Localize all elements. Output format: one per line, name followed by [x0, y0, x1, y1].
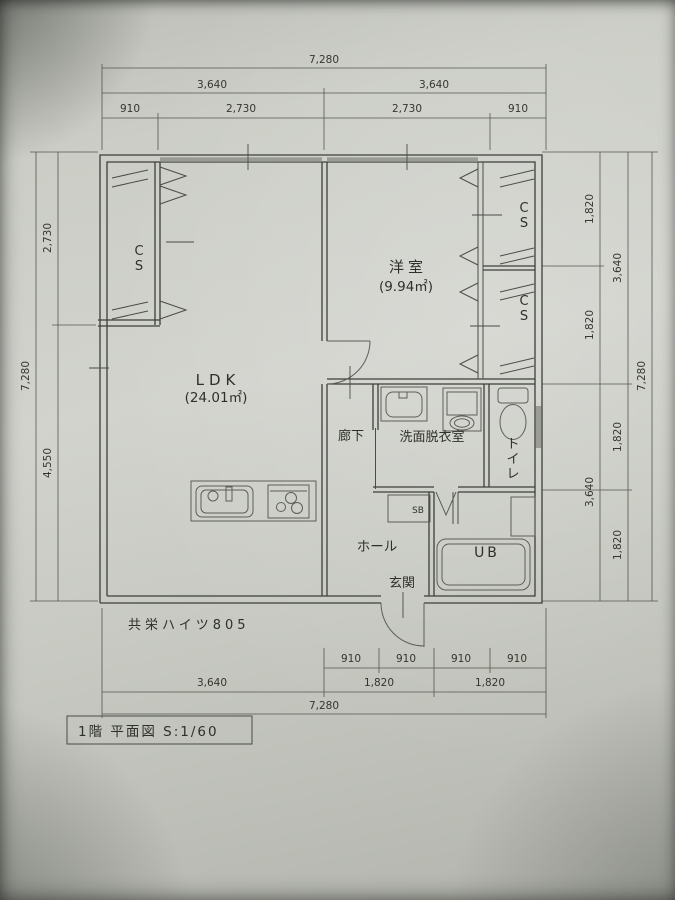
dim-bottom-910-1: 910	[341, 653, 361, 665]
interior-walls	[322, 162, 535, 596]
dim-top-seg4: 910	[508, 103, 528, 115]
dimension-chain-top: 7,280 3,640 3,640 910 2,730 2,730 910	[102, 54, 546, 150]
closet-label-right-bottom: CS	[519, 294, 528, 324]
ub-counter	[511, 497, 535, 536]
dim-top-seg2: 2,730	[226, 103, 256, 115]
dim-top-seg1: 910	[120, 103, 140, 115]
dim-left-total: 7,280	[20, 361, 32, 391]
kitchen-sink	[196, 486, 253, 517]
room-label-western: 洋室	[389, 258, 427, 276]
dim-top-total: 7,280	[309, 54, 339, 66]
dim-top-seg3: 2,730	[392, 103, 422, 115]
dim-bottom-910-2: 910	[396, 653, 416, 665]
sliding-door-marks	[460, 169, 478, 373]
washbasin	[381, 387, 427, 421]
building-label: 共栄ハイツ805	[128, 618, 250, 633]
dim-right-1820-a: 1,820	[584, 194, 596, 224]
washing-machine	[443, 388, 481, 431]
window-western-top	[327, 157, 478, 162]
title-block-text: 1階 平面図 S:1/60	[78, 724, 219, 740]
dim-bottom-910-4: 910	[507, 653, 527, 665]
kitchen-counter	[191, 481, 316, 521]
dim-right-3640-b: 3,640	[612, 253, 624, 283]
floor-plan-photo: 7,280 3,640 3,640 910 2,730 2,730 910 91…	[0, 0, 675, 900]
dim-right-1820-b: 1,820	[584, 310, 596, 340]
room-label-entrance: 玄関	[389, 576, 415, 591]
room-area-ldk: (24.01㎡)	[185, 390, 248, 406]
dim-right-1820-c: 1,820	[612, 422, 624, 452]
room-label-ldk: LDK	[196, 371, 241, 389]
dimension-chain-right: 1,820 1,820 3,640 3,640 1,820 1,820 7,28…	[542, 152, 658, 601]
room-labels: 洋室 (9.94㎡) LDK (24.01㎡) 廊下 洗面脱衣室 トイレ ホール…	[134, 201, 528, 591]
dim-bottom-1820-2: 1,820	[475, 677, 505, 689]
entrance-door-swing	[381, 603, 424, 647]
closet-hatch	[500, 170, 534, 374]
dim-right-3640-a: 3,640	[584, 477, 596, 507]
window-ldk-top	[160, 157, 322, 162]
ldk-door-swing	[327, 341, 370, 384]
dim-bottom-total: 7,280	[309, 700, 339, 712]
room-label-unit-bath: UB	[474, 545, 500, 561]
closet-left-cs	[98, 162, 194, 326]
dim-bottom-910-3: 910	[451, 653, 471, 665]
room-label-washroom: 洗面脱衣室	[399, 429, 464, 445]
dimension-chain-left: 2,730 4,550 7,280	[20, 152, 98, 601]
dim-left-2730: 2,730	[42, 223, 54, 253]
toilet-fixture	[498, 388, 528, 440]
dim-bottom-1820-1: 1,820	[364, 677, 394, 689]
shoe-box: SB	[388, 495, 430, 522]
room-label-hall: ホール	[357, 539, 398, 555]
dim-top-right-half: 3,640	[419, 79, 449, 91]
dim-right-total: 7,280	[636, 361, 648, 391]
closet-right-cs	[460, 162, 535, 379]
closet-label-left: CS	[134, 244, 143, 274]
shoe-box-label: SB	[412, 506, 424, 516]
room-label-corridor: 廊下	[338, 428, 364, 444]
floor-plan-drawing: 7,280 3,640 3,640 910 2,730 2,730 910 91…	[0, 0, 675, 900]
bathtub	[437, 497, 535, 590]
dim-left-4550: 4,550	[42, 448, 54, 478]
room-area-western: (9.94㎡)	[379, 279, 433, 295]
window-toilet	[536, 406, 542, 448]
kitchen-stove	[268, 485, 309, 518]
dim-bottom-3640: 3,640	[197, 677, 227, 689]
closet-label-right-top: CS	[519, 201, 528, 231]
folding-door-marks	[160, 167, 186, 319]
dim-right-1820-d: 1,820	[612, 530, 624, 560]
room-label-toilet: トイレ	[506, 437, 519, 482]
dim-top-left-half: 3,640	[197, 79, 227, 91]
